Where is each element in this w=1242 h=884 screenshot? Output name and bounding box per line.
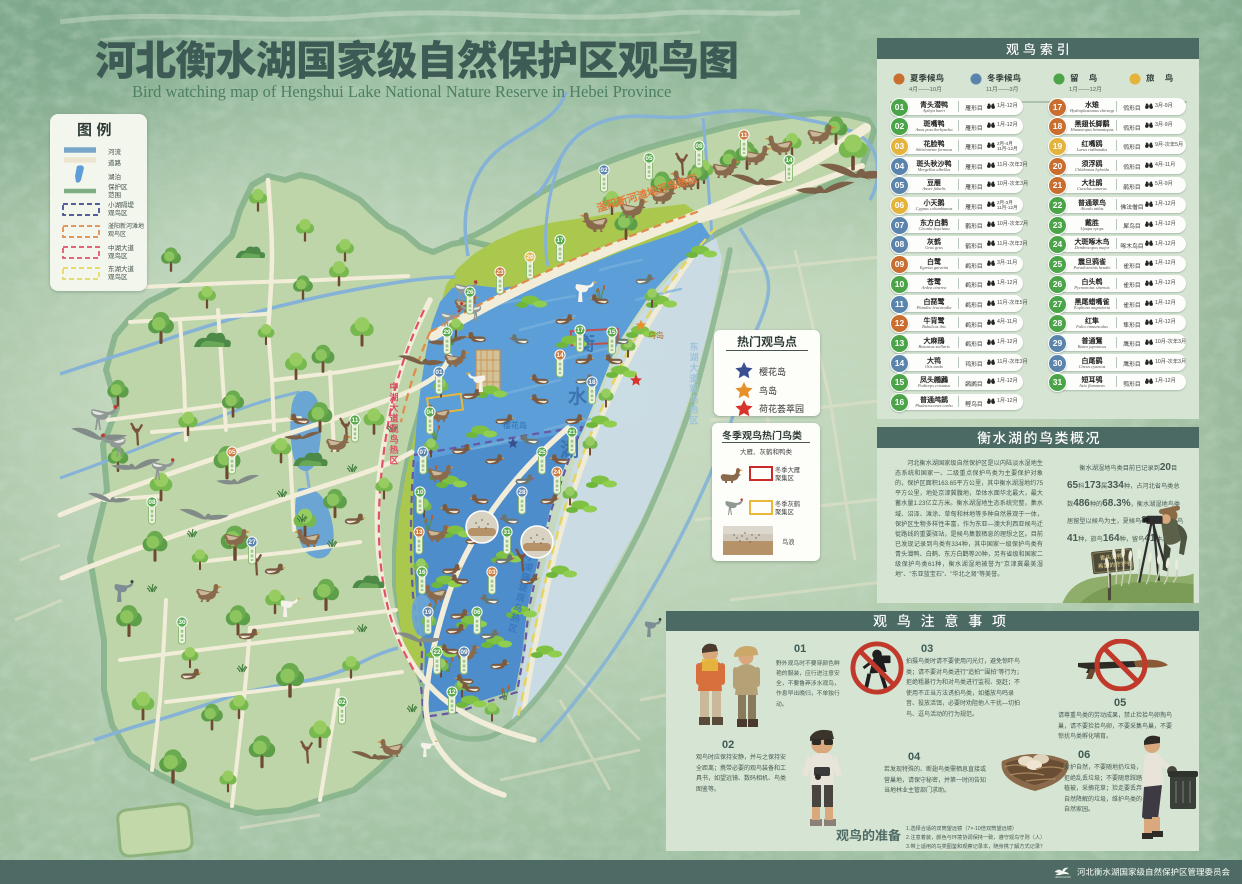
svg-text:13: 13 bbox=[415, 529, 423, 536]
svg-text:01: 01 bbox=[435, 369, 443, 376]
svg-text:11: 11 bbox=[352, 417, 359, 424]
svg-text:樱花岛: 樱花岛 bbox=[503, 420, 527, 430]
svg-text:02: 02 bbox=[338, 699, 346, 706]
svg-text:HENGSHUIHU: HENGSHUIHU bbox=[1055, 875, 1071, 879]
svg-text:28: 28 bbox=[518, 489, 526, 496]
svg-text:22: 22 bbox=[433, 649, 441, 656]
svg-text:区: 区 bbox=[389, 456, 398, 466]
svg-text:05: 05 bbox=[228, 449, 236, 456]
svg-text:14: 14 bbox=[556, 352, 564, 359]
svg-text:21: 21 bbox=[568, 429, 576, 436]
svg-text:热: 热 bbox=[389, 444, 398, 455]
svg-text:29: 29 bbox=[443, 329, 451, 336]
svg-text:06: 06 bbox=[473, 609, 481, 616]
svg-text:18: 18 bbox=[588, 379, 596, 386]
svg-text:20: 20 bbox=[526, 254, 534, 261]
svg-text:08: 08 bbox=[695, 143, 703, 150]
svg-text:湖: 湖 bbox=[689, 352, 698, 363]
svg-text:水: 水 bbox=[568, 386, 588, 408]
svg-text:17: 17 bbox=[556, 237, 564, 244]
svg-text:14: 14 bbox=[785, 157, 793, 164]
svg-text:道: 道 bbox=[689, 373, 698, 384]
svg-text:11: 11 bbox=[741, 132, 748, 139]
svg-text:湖: 湖 bbox=[389, 392, 398, 403]
svg-text:观: 观 bbox=[389, 424, 398, 434]
svg-text:25: 25 bbox=[538, 449, 546, 456]
svg-text:05: 05 bbox=[645, 155, 653, 162]
svg-text:02: 02 bbox=[600, 167, 608, 174]
svg-text:鸟岛: 鸟岛 bbox=[648, 330, 664, 340]
svg-text:09: 09 bbox=[460, 649, 468, 656]
svg-text:区: 区 bbox=[689, 416, 698, 426]
svg-text:07: 07 bbox=[419, 449, 427, 456]
svg-text:12: 12 bbox=[448, 689, 456, 696]
svg-text:大: 大 bbox=[689, 362, 698, 373]
svg-text:热: 热 bbox=[689, 404, 698, 415]
svg-text:03: 03 bbox=[488, 569, 496, 576]
svg-text:15: 15 bbox=[608, 329, 616, 336]
svg-text:鸟: 鸟 bbox=[389, 434, 398, 445]
svg-text:31: 31 bbox=[503, 529, 511, 536]
svg-text:17: 17 bbox=[576, 327, 584, 334]
svg-text:观: 观 bbox=[689, 384, 698, 394]
svg-text:30: 30 bbox=[178, 619, 186, 626]
svg-text:鸟: 鸟 bbox=[689, 394, 698, 405]
svg-text:23: 23 bbox=[496, 269, 504, 276]
svg-text:16: 16 bbox=[418, 569, 426, 576]
svg-text:大: 大 bbox=[389, 402, 398, 413]
svg-text:10: 10 bbox=[416, 489, 424, 496]
svg-text:中: 中 bbox=[389, 381, 398, 392]
svg-text:东: 东 bbox=[689, 341, 698, 352]
svg-text:19: 19 bbox=[424, 609, 432, 616]
svg-text:27: 27 bbox=[248, 539, 256, 546]
svg-text:24: 24 bbox=[553, 469, 561, 476]
svg-text:04: 04 bbox=[426, 409, 434, 416]
svg-text:道: 道 bbox=[389, 413, 398, 424]
svg-text:08: 08 bbox=[148, 499, 156, 506]
svg-text:26: 26 bbox=[466, 289, 474, 296]
